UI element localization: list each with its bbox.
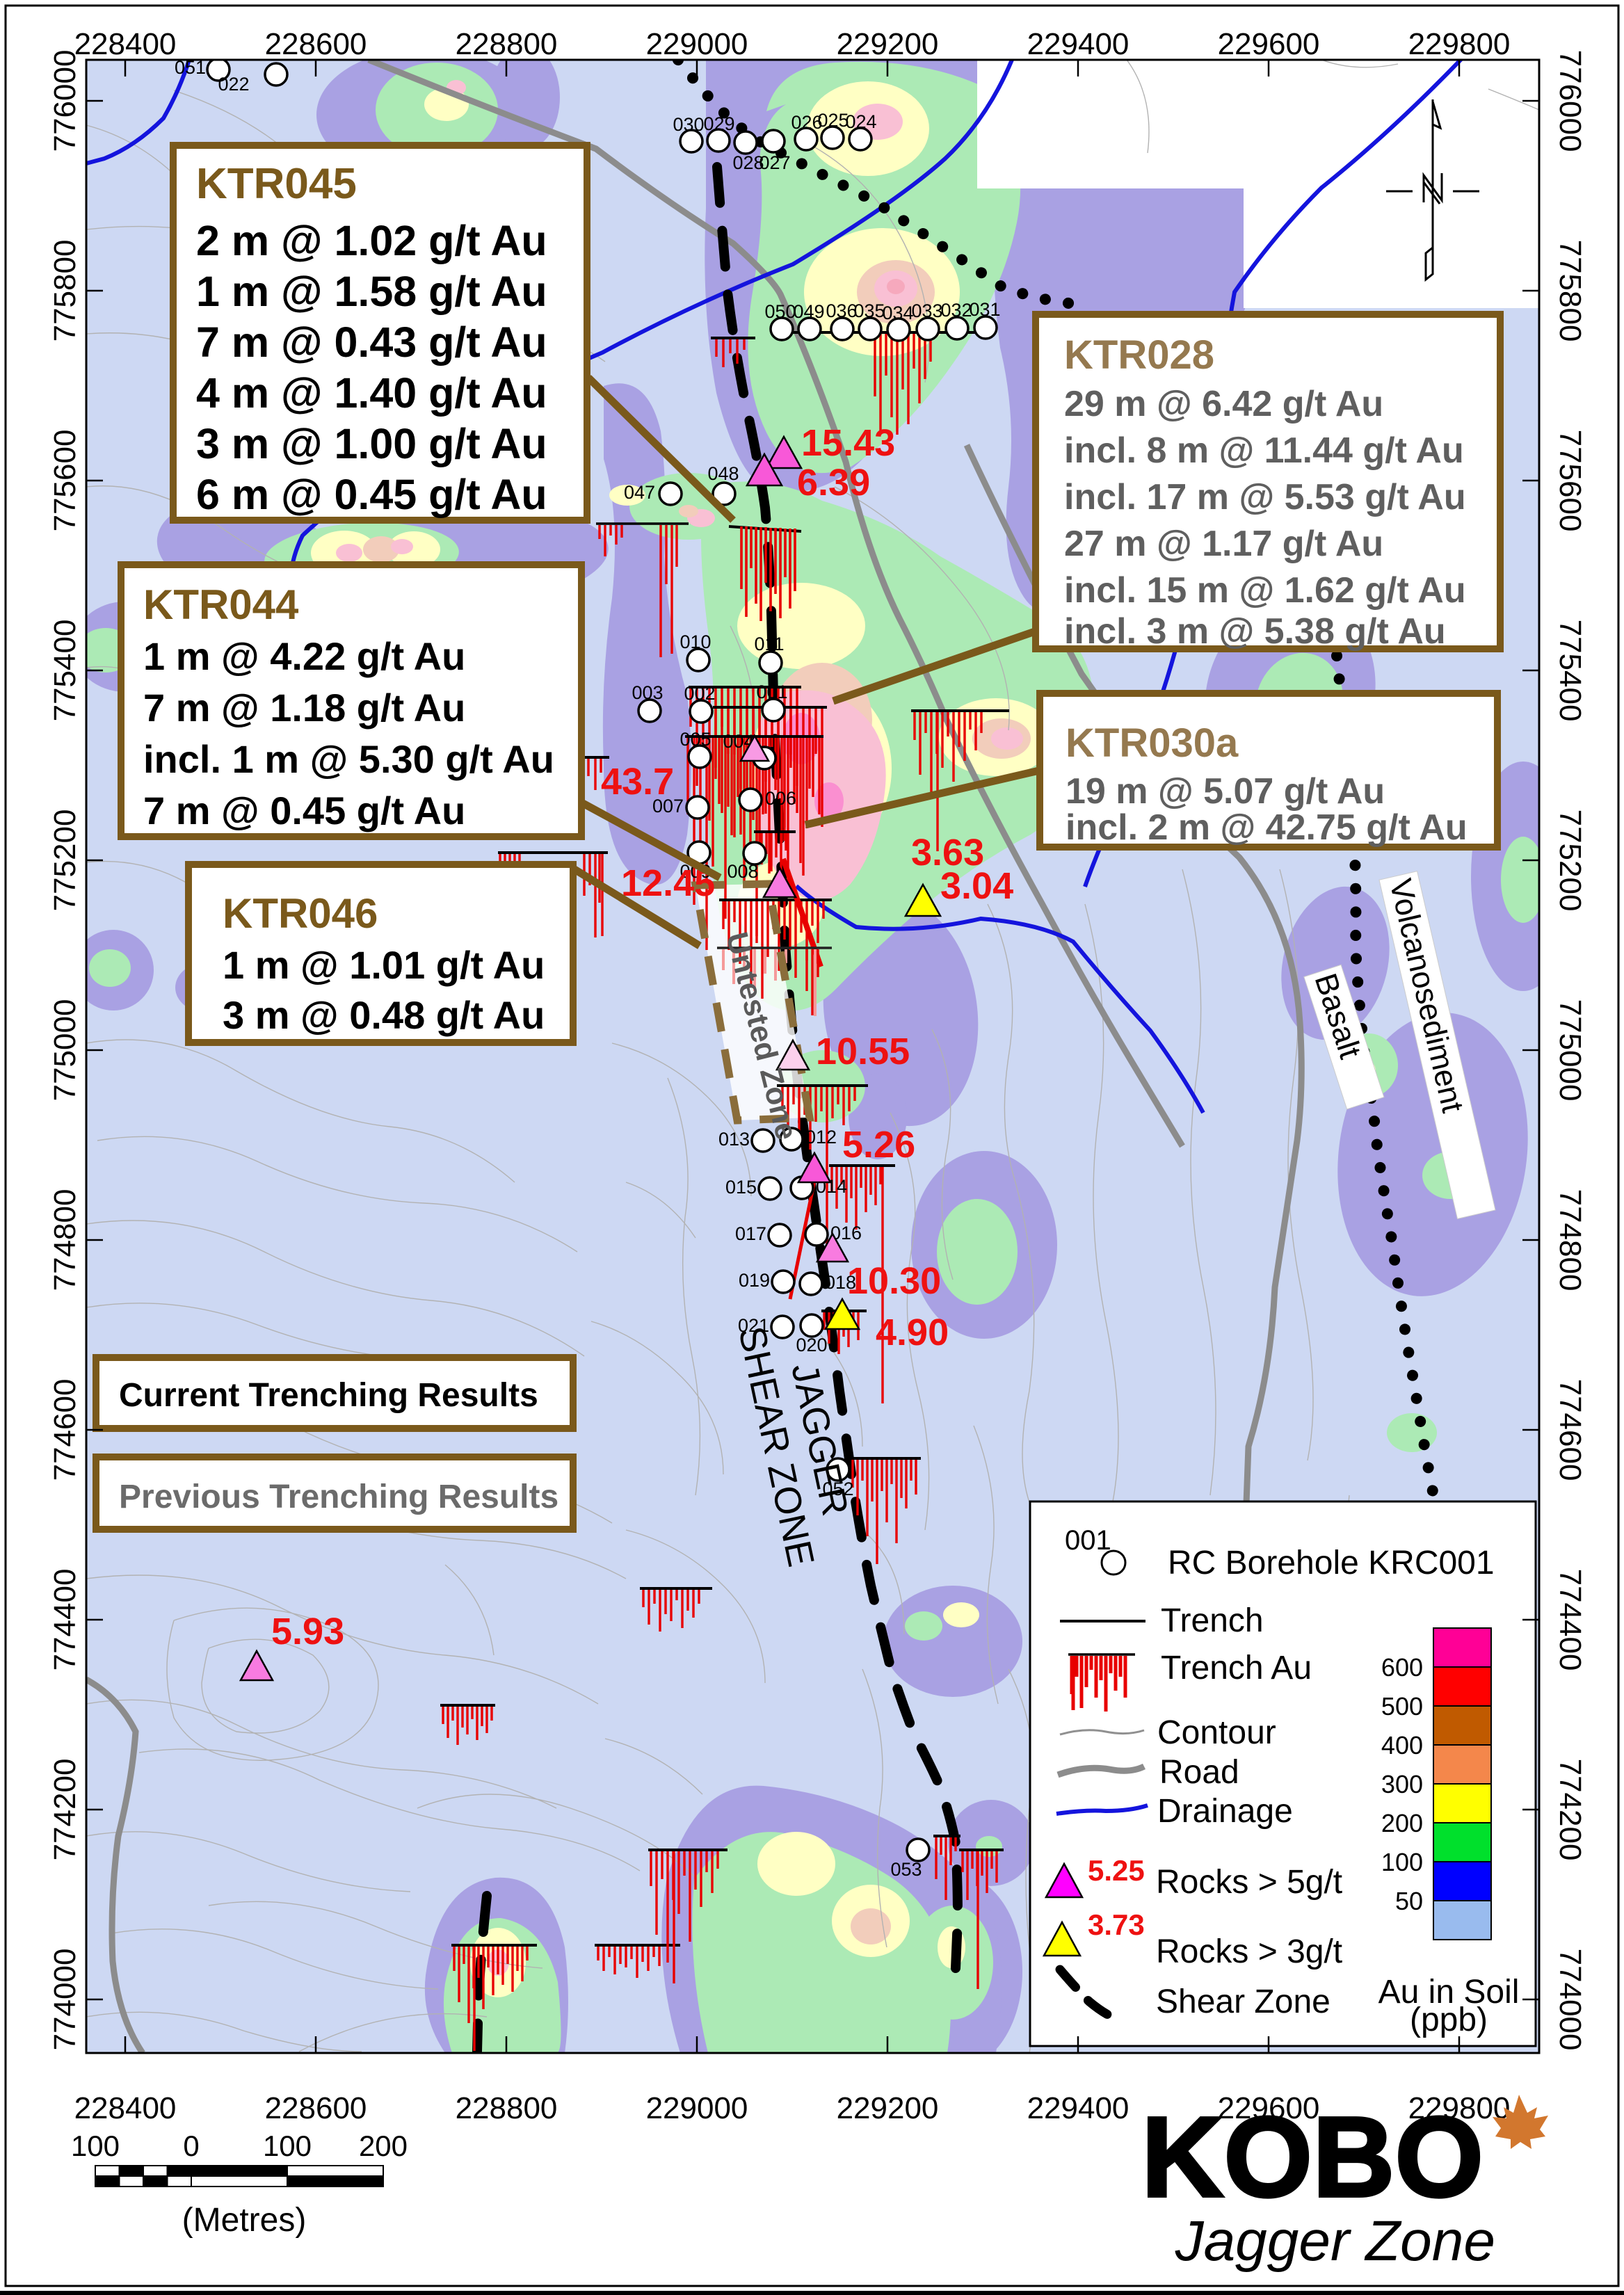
svg-text:10.30: 10.30: [847, 1260, 941, 1302]
svg-text:1 m @ 4.22 g/t Au: 1 m @ 4.22 g/t Au: [143, 634, 465, 678]
svg-text:Jagger Zone: Jagger Zone: [1175, 2209, 1495, 2273]
svg-text:775200: 775200: [1553, 810, 1587, 912]
svg-text:(ppb): (ppb): [1410, 2002, 1488, 2038]
svg-text:011: 011: [754, 634, 784, 654]
svg-text:5.25: 5.25: [1088, 1854, 1145, 1887]
svg-text:033: 033: [911, 300, 942, 321]
svg-text:029: 029: [703, 113, 734, 134]
svg-text:775000: 775000: [48, 999, 82, 1102]
svg-text:025: 025: [817, 110, 849, 131]
svg-text:017: 017: [735, 1223, 766, 1244]
svg-text:KTR030a: KTR030a: [1066, 720, 1239, 766]
svg-text:29 m @ 6.42 g/t Au: 29 m @ 6.42 g/t Au: [1064, 384, 1383, 424]
svg-text:3 m @ 0.48 g/t Au: 3 m @ 0.48 g/t Au: [223, 993, 545, 1037]
svg-text:774600: 774600: [48, 1379, 82, 1481]
svg-text:774000: 774000: [1553, 1949, 1587, 2051]
svg-text:7 m @ 0.43 g/t Au: 7 m @ 0.43 g/t Au: [196, 319, 547, 366]
svg-text:4 m @ 1.40 g/t Au: 4 m @ 1.40 g/t Au: [196, 369, 547, 417]
svg-text:027: 027: [759, 152, 790, 173]
svg-text:3.73: 3.73: [1088, 1908, 1145, 1941]
svg-text:KTR045: KTR045: [196, 160, 357, 208]
svg-text:incl. 3 m @ 5.38 g/t Au: incl. 3 m @ 5.38 g/t Au: [1064, 611, 1446, 652]
svg-text:774800: 774800: [48, 1189, 82, 1291]
svg-text:400: 400: [1381, 1731, 1423, 1759]
svg-text:1 m @ 1.58 g/t Au: 1 m @ 1.58 g/t Au: [196, 268, 547, 315]
svg-text:047: 047: [624, 482, 655, 503]
svg-text:003: 003: [632, 682, 663, 703]
svg-text:024: 024: [845, 111, 876, 132]
svg-text:775200: 775200: [48, 810, 82, 912]
svg-text:229200: 229200: [837, 27, 939, 61]
svg-text:1 m @ 1.01 g/t Au: 1 m @ 1.01 g/t Au: [223, 943, 545, 987]
svg-text:015: 015: [725, 1177, 757, 1198]
svg-text:200: 200: [1381, 1809, 1423, 1837]
svg-text:300: 300: [1381, 1770, 1423, 1798]
svg-text:3 m @ 1.00 g/t Au: 3 m @ 1.00 g/t Au: [196, 420, 547, 467]
svg-text:228800: 228800: [456, 2091, 558, 2125]
svg-text:KTR044: KTR044: [143, 581, 299, 628]
svg-text:775600: 775600: [1553, 430, 1587, 532]
svg-text:KTR028: KTR028: [1064, 332, 1214, 378]
svg-text:013: 013: [718, 1129, 750, 1150]
svg-text:019: 019: [739, 1270, 770, 1291]
svg-text:incl. 2 m @ 42.75 g/t Au: incl. 2 m @ 42.75 g/t Au: [1066, 807, 1468, 848]
svg-text:001: 001: [756, 682, 787, 702]
svg-text:229000: 229000: [646, 2091, 748, 2125]
svg-text:incl. 1 m @ 5.30 g/t Au: incl. 1 m @ 5.30 g/t Au: [143, 737, 554, 781]
svg-text:100: 100: [263, 2129, 312, 2162]
svg-text:KTR046: KTR046: [223, 890, 378, 937]
svg-text:229800: 229800: [1408, 27, 1511, 61]
svg-text:incl. 17 m @ 5.53 g/t Au: incl. 17 m @ 5.53 g/t Au: [1064, 477, 1466, 517]
svg-text:053: 053: [890, 1859, 922, 1880]
svg-text:005: 005: [680, 729, 711, 750]
svg-text:775400: 775400: [48, 620, 82, 722]
svg-text:229400: 229400: [1027, 2091, 1129, 2125]
svg-text:228600: 228600: [265, 27, 367, 61]
svg-text:775800: 775800: [48, 240, 82, 342]
svg-text:7 m @ 1.18 g/t Au: 7 m @ 1.18 g/t Au: [143, 686, 465, 730]
svg-text:6.39: 6.39: [797, 462, 870, 504]
svg-text:100: 100: [71, 2129, 120, 2162]
svg-text:774800: 774800: [1553, 1189, 1587, 1291]
svg-text:035: 035: [853, 300, 885, 321]
svg-text:229000: 229000: [646, 27, 748, 61]
svg-text:012: 012: [805, 1127, 837, 1147]
svg-text:774600: 774600: [1553, 1379, 1587, 1481]
svg-text:022: 022: [218, 74, 249, 95]
svg-text:4.90: 4.90: [876, 1312, 949, 1353]
svg-text:incl. 15 m @ 1.62 g/t Au: incl. 15 m @ 1.62 g/t Au: [1064, 570, 1466, 611]
svg-text:Trench Au: Trench Au: [1161, 1650, 1312, 1686]
svg-text:500: 500: [1381, 1692, 1423, 1721]
svg-text:10.55: 10.55: [816, 1031, 910, 1072]
svg-text:19 m @ 5.07 g/t Au: 19 m @ 5.07 g/t Au: [1066, 771, 1385, 812]
svg-text:775000: 775000: [1553, 999, 1587, 1102]
svg-text:100: 100: [1381, 1848, 1423, 1876]
svg-text:600: 600: [1381, 1653, 1423, 1682]
svg-text:008: 008: [727, 861, 758, 882]
svg-text:001: 001: [1065, 1525, 1111, 1556]
svg-text:775600: 775600: [48, 430, 82, 532]
svg-text:020: 020: [796, 1335, 827, 1355]
svg-text:774400: 774400: [48, 1569, 82, 1671]
svg-text:200: 200: [359, 2129, 408, 2162]
svg-text:774000: 774000: [48, 1949, 82, 2051]
svg-text:036: 036: [826, 300, 857, 321]
svg-text:010: 010: [680, 631, 711, 652]
svg-text:228600: 228600: [265, 2091, 367, 2125]
svg-text:RC Borehole KRC001: RC Borehole KRC001: [1168, 1545, 1495, 1581]
svg-text:775400: 775400: [1553, 620, 1587, 722]
svg-text:6 m @ 0.45 g/t Au: 6 m @ 0.45 g/t Au: [196, 471, 547, 518]
svg-text:3.04: 3.04: [940, 865, 1013, 907]
svg-text:002: 002: [684, 683, 715, 704]
svg-text:030: 030: [673, 114, 704, 135]
svg-text:2 m @ 1.02 g/t Au: 2 m @ 1.02 g/t Au: [196, 217, 547, 264]
svg-text:229600: 229600: [1218, 27, 1320, 61]
svg-text:775800: 775800: [1553, 240, 1587, 342]
svg-text:Trench: Trench: [1161, 1602, 1264, 1639]
svg-text:43.7: 43.7: [601, 761, 674, 803]
svg-text:Current Trenching Results: Current Trenching Results: [119, 1377, 538, 1414]
svg-text:15.43: 15.43: [801, 422, 895, 464]
svg-text:228400: 228400: [74, 2091, 177, 2125]
svg-text:776000: 776000: [48, 50, 82, 152]
svg-text:228400: 228400: [74, 27, 177, 61]
svg-text:0: 0: [183, 2129, 199, 2162]
svg-text:228800: 228800: [456, 27, 558, 61]
svg-text:50: 50: [1395, 1887, 1423, 1915]
svg-text:049: 049: [793, 301, 824, 322]
svg-text:Shear Zone: Shear Zone: [1156, 1983, 1330, 2020]
svg-text:032: 032: [940, 300, 972, 321]
svg-text:Rocks > 5g/t: Rocks > 5g/t: [1156, 1864, 1342, 1901]
svg-text:Drainage: Drainage: [1157, 1793, 1293, 1830]
svg-text:Previous Trenching Results: Previous Trenching Results: [119, 1479, 558, 1515]
svg-text:774400: 774400: [1553, 1569, 1587, 1671]
svg-text:Rocks > 3g/t: Rocks > 3g/t: [1156, 1933, 1342, 1970]
svg-text:034: 034: [882, 303, 913, 323]
svg-text:5.93: 5.93: [271, 1611, 344, 1652]
svg-text:incl. 8 m @ 11.44 g/t Au: incl. 8 m @ 11.44 g/t Au: [1064, 430, 1464, 471]
svg-text:229200: 229200: [837, 2091, 939, 2125]
svg-text:006: 006: [765, 788, 796, 809]
svg-text:774200: 774200: [1553, 1759, 1587, 1861]
svg-text:774200: 774200: [48, 1759, 82, 1861]
svg-text:229400: 229400: [1027, 27, 1129, 61]
svg-text:776000: 776000: [1553, 50, 1587, 152]
svg-text:Contour: Contour: [1157, 1714, 1276, 1751]
svg-text:7 m @ 0.45 g/t Au: 7 m @ 0.45 g/t Au: [143, 789, 465, 832]
svg-text:031: 031: [969, 299, 1000, 320]
svg-text:050: 050: [764, 301, 796, 322]
svg-text:KOBO: KOBO: [1141, 2093, 1484, 2221]
svg-text:048: 048: [707, 463, 739, 484]
svg-text:Road: Road: [1159, 1754, 1239, 1791]
svg-text:5.26: 5.26: [842, 1124, 915, 1166]
svg-text:27 m @ 1.17 g/t Au: 27 m @ 1.17 g/t Au: [1064, 524, 1383, 564]
svg-text:(Metres): (Metres): [182, 2202, 307, 2239]
